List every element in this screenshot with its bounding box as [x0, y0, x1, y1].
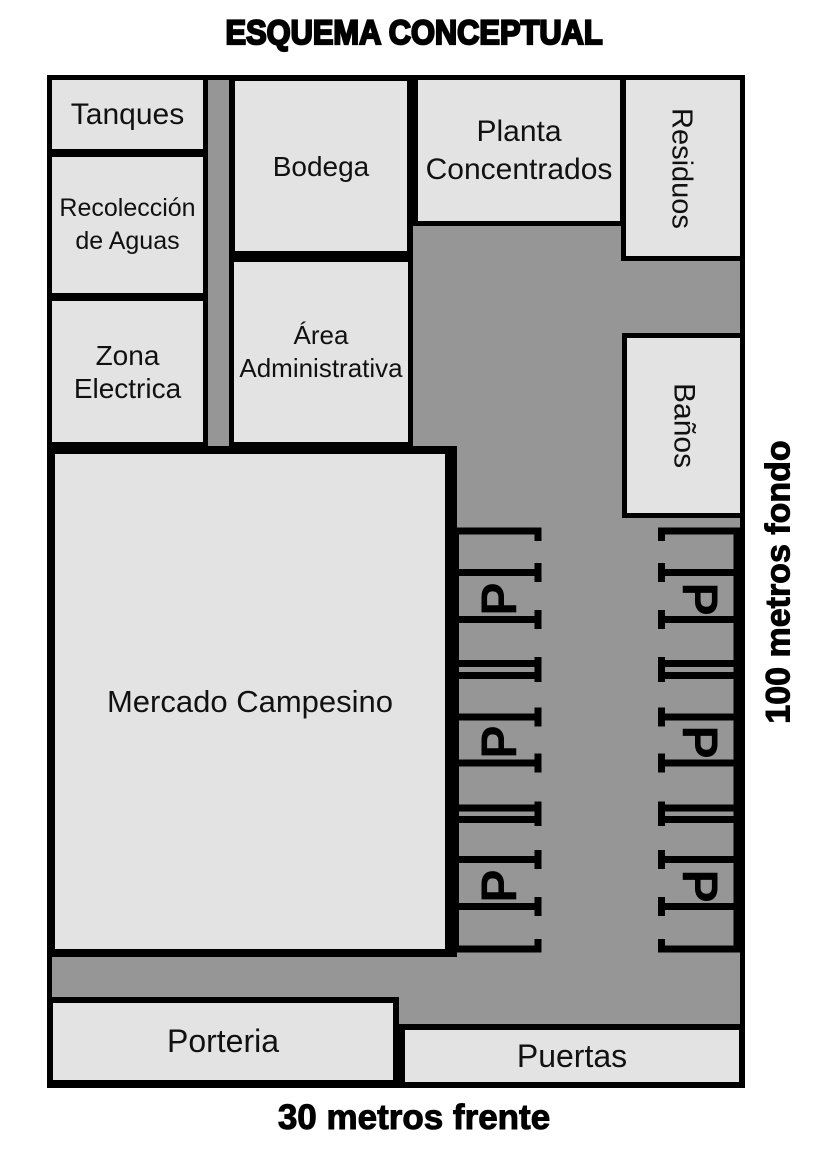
svg-text:P: P — [672, 582, 728, 615]
svg-text:P: P — [672, 869, 728, 902]
svg-text:P: P — [672, 725, 728, 758]
svg-text:P: P — [471, 582, 527, 615]
svg-text:P: P — [471, 725, 527, 758]
svg-text:P: P — [471, 869, 527, 902]
